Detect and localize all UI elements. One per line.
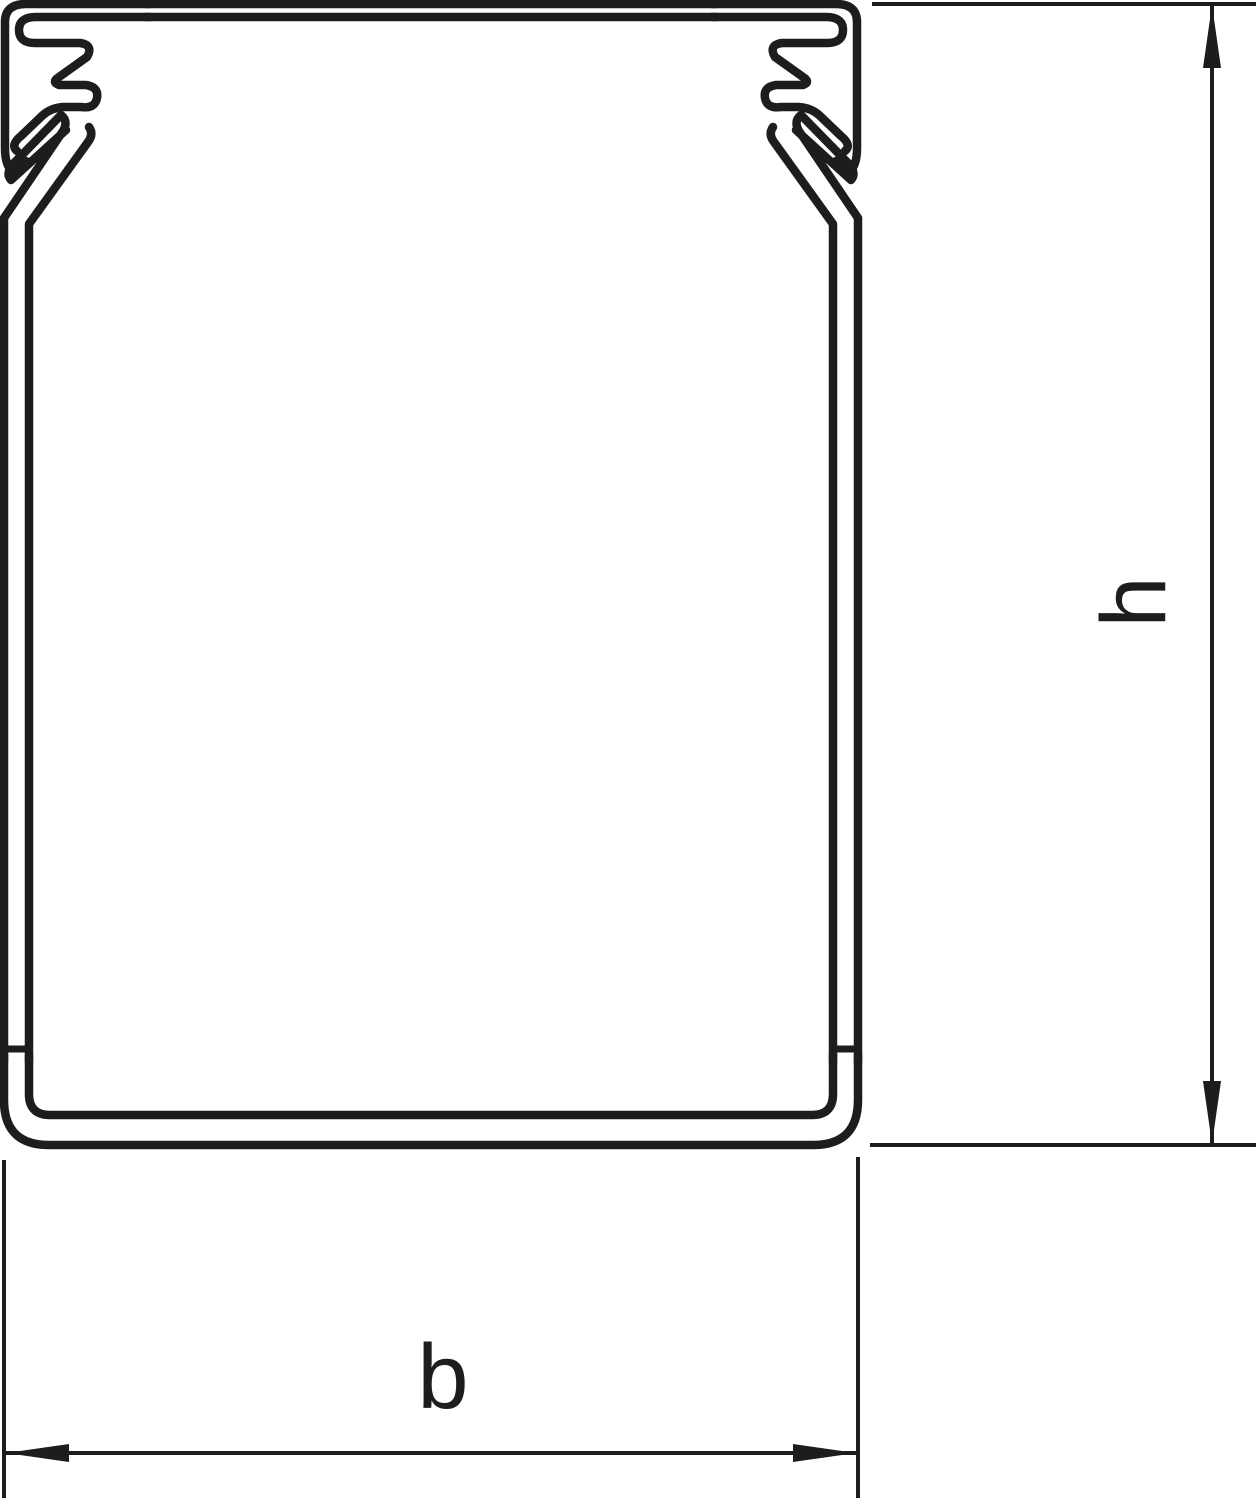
h-dimension: h <box>870 4 1256 1145</box>
duct-cross-section-diagram: h b <box>0 0 1258 1500</box>
top-left-clip <box>4 4 150 1062</box>
b-arrow-left-icon <box>6 1444 69 1462</box>
b-dimension: b <box>4 1157 858 1498</box>
width-dimension-label: b <box>417 1326 468 1428</box>
base-inner-line <box>29 1055 833 1115</box>
h-arrow-down-icon <box>1203 1081 1221 1144</box>
height-dimension-label: h <box>1083 576 1185 627</box>
duct-profile <box>4 4 858 1145</box>
top-right-clip-mirrored <box>712 4 858 1062</box>
base-outer-line <box>4 1055 858 1145</box>
b-arrow-right-icon <box>793 1444 856 1462</box>
h-arrow-up-icon <box>1203 5 1221 68</box>
diagram-canvas: h b <box>0 0 1258 1500</box>
